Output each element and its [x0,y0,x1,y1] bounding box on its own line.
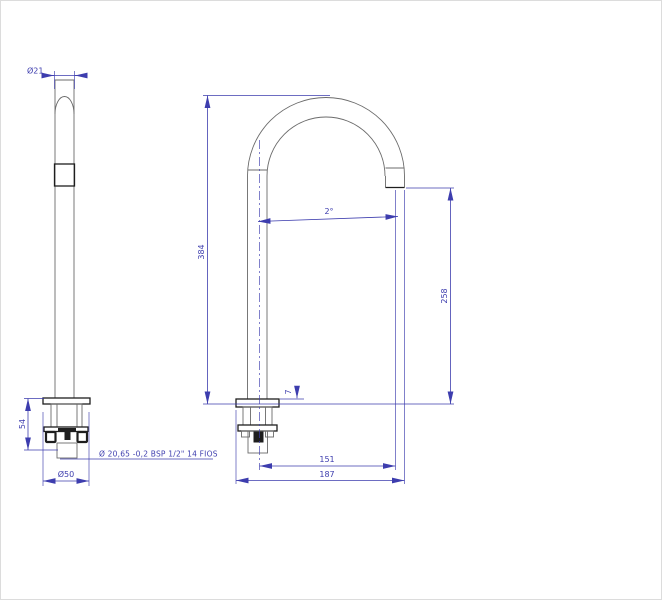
clamp-hook-left [46,432,56,442]
dim-spout-angle: 2° [258,207,398,222]
dim-center-to-outlet: 151 [260,190,396,470]
dim-plate-thickness: 7 [280,389,304,399]
technical-drawing-page: Ø21 54 Ø50 Ø 20,65 -0,2 BSP 1/2" 14 FIOS [0,0,662,600]
dim-total-height: 384 [197,96,330,405]
base-plate-front [236,399,279,407]
outlet-leg [386,176,405,188]
clamp-stud-front [254,432,264,443]
base-body-front [243,407,272,425]
label-total-height: 384 [197,244,206,259]
clamp-stud-bar [58,428,76,431]
base-body-inner-lines-side [57,404,77,427]
base-plate-side [43,398,90,404]
label-spout-angle: 2° [324,207,333,216]
label-tube-diameter: Ø21 [27,66,43,76]
label-spout-outlet-height: 258 [440,288,449,303]
label-base-diameter: Ø50 [58,469,74,479]
front-view: 384 258 2° 7 151 187 [197,96,454,485]
faucet-technical-drawing: Ø21 54 Ø50 Ø 20,65 -0,2 BSP 1/2" 14 FIOS [0,0,662,600]
side-view: Ø21 54 Ø50 Ø 20,65 -0,2 BSP 1/2" 14 FIOS [18,66,218,487]
label-center-to-outlet: 151 [319,455,334,464]
base-body-inner-lines-front [251,407,266,425]
spout-arc-outer [248,98,405,177]
label-max-projection: 187 [319,470,334,479]
thread-spec-note: Ø 20,65 -0,2 BSP 1/2" 14 FIOS [60,450,218,460]
spout-tube-side [55,80,74,398]
riser-leg [248,176,268,399]
clamp-stud [65,431,71,440]
page-border [1,1,662,600]
spout-tube-dome [55,97,74,115]
spout-arc-inner [267,117,385,176]
clamp-hook-right [78,432,88,442]
label-thread-spec: Ø 20,65 -0,2 BSP 1/2" 14 FIOS [99,450,218,459]
threaded-tail-side [57,443,77,458]
spout-union-ring-side [55,164,75,186]
label-under-counter-height: 54 [18,419,27,429]
label-plate-thickness: 7 [284,389,293,394]
dim-spout-outlet-height: 258 [406,188,454,404]
clamp-hook-front-right [266,431,274,437]
clamp-flange-front [238,425,277,431]
dim-angle-line [258,217,398,222]
